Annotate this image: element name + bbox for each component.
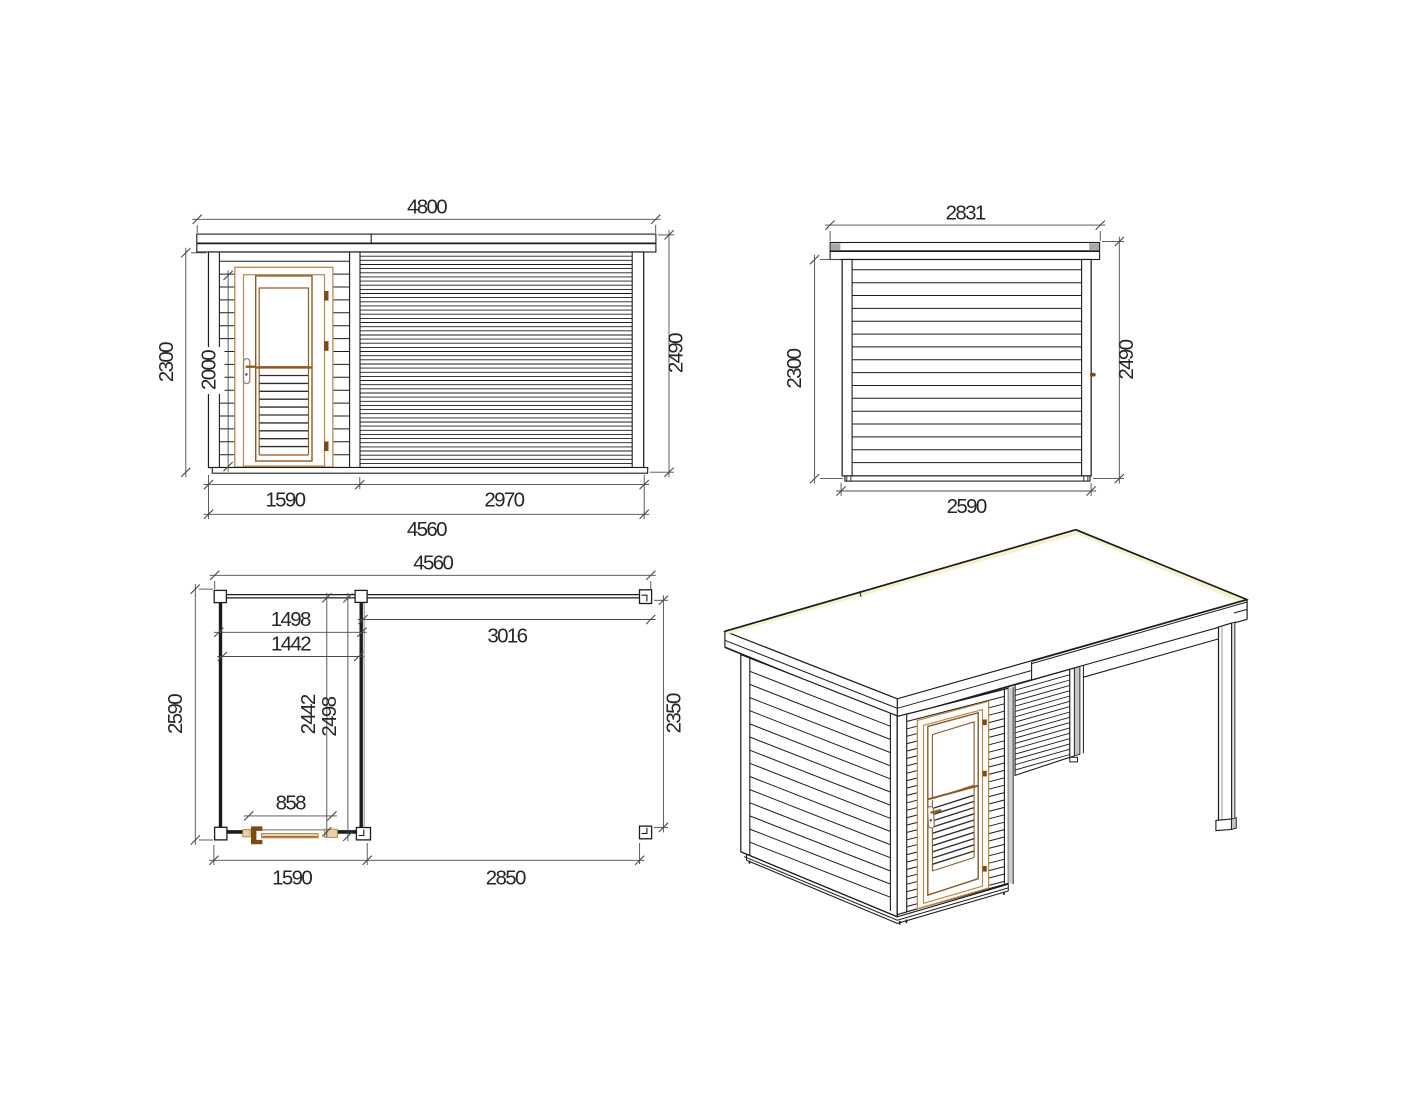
svg-text:2490: 2490 <box>1115 339 1138 379</box>
svg-text:4560: 4560 <box>413 552 453 575</box>
svg-text:2300: 2300 <box>155 342 178 382</box>
svg-text:4800: 4800 <box>407 196 447 219</box>
svg-text:3016: 3016 <box>487 624 527 647</box>
svg-text:2350: 2350 <box>663 693 686 733</box>
svg-text:4560: 4560 <box>407 518 447 541</box>
svg-text:1498: 1498 <box>271 608 311 631</box>
svg-text:1442: 1442 <box>271 632 311 655</box>
svg-text:2000: 2000 <box>198 350 221 390</box>
svg-text:2442: 2442 <box>297 694 320 734</box>
svg-text:1590: 1590 <box>265 488 305 511</box>
svg-text:2590: 2590 <box>164 694 187 734</box>
svg-text:2831: 2831 <box>946 201 986 224</box>
svg-text:2970: 2970 <box>484 488 524 511</box>
svg-text:2498: 2498 <box>318 696 341 736</box>
svg-text:2590: 2590 <box>947 495 987 518</box>
svg-text:2490: 2490 <box>665 333 688 373</box>
svg-text:2300: 2300 <box>783 348 806 388</box>
svg-text:2850: 2850 <box>486 866 526 889</box>
svg-text:858: 858 <box>276 792 307 815</box>
svg-text:1590: 1590 <box>272 866 312 889</box>
